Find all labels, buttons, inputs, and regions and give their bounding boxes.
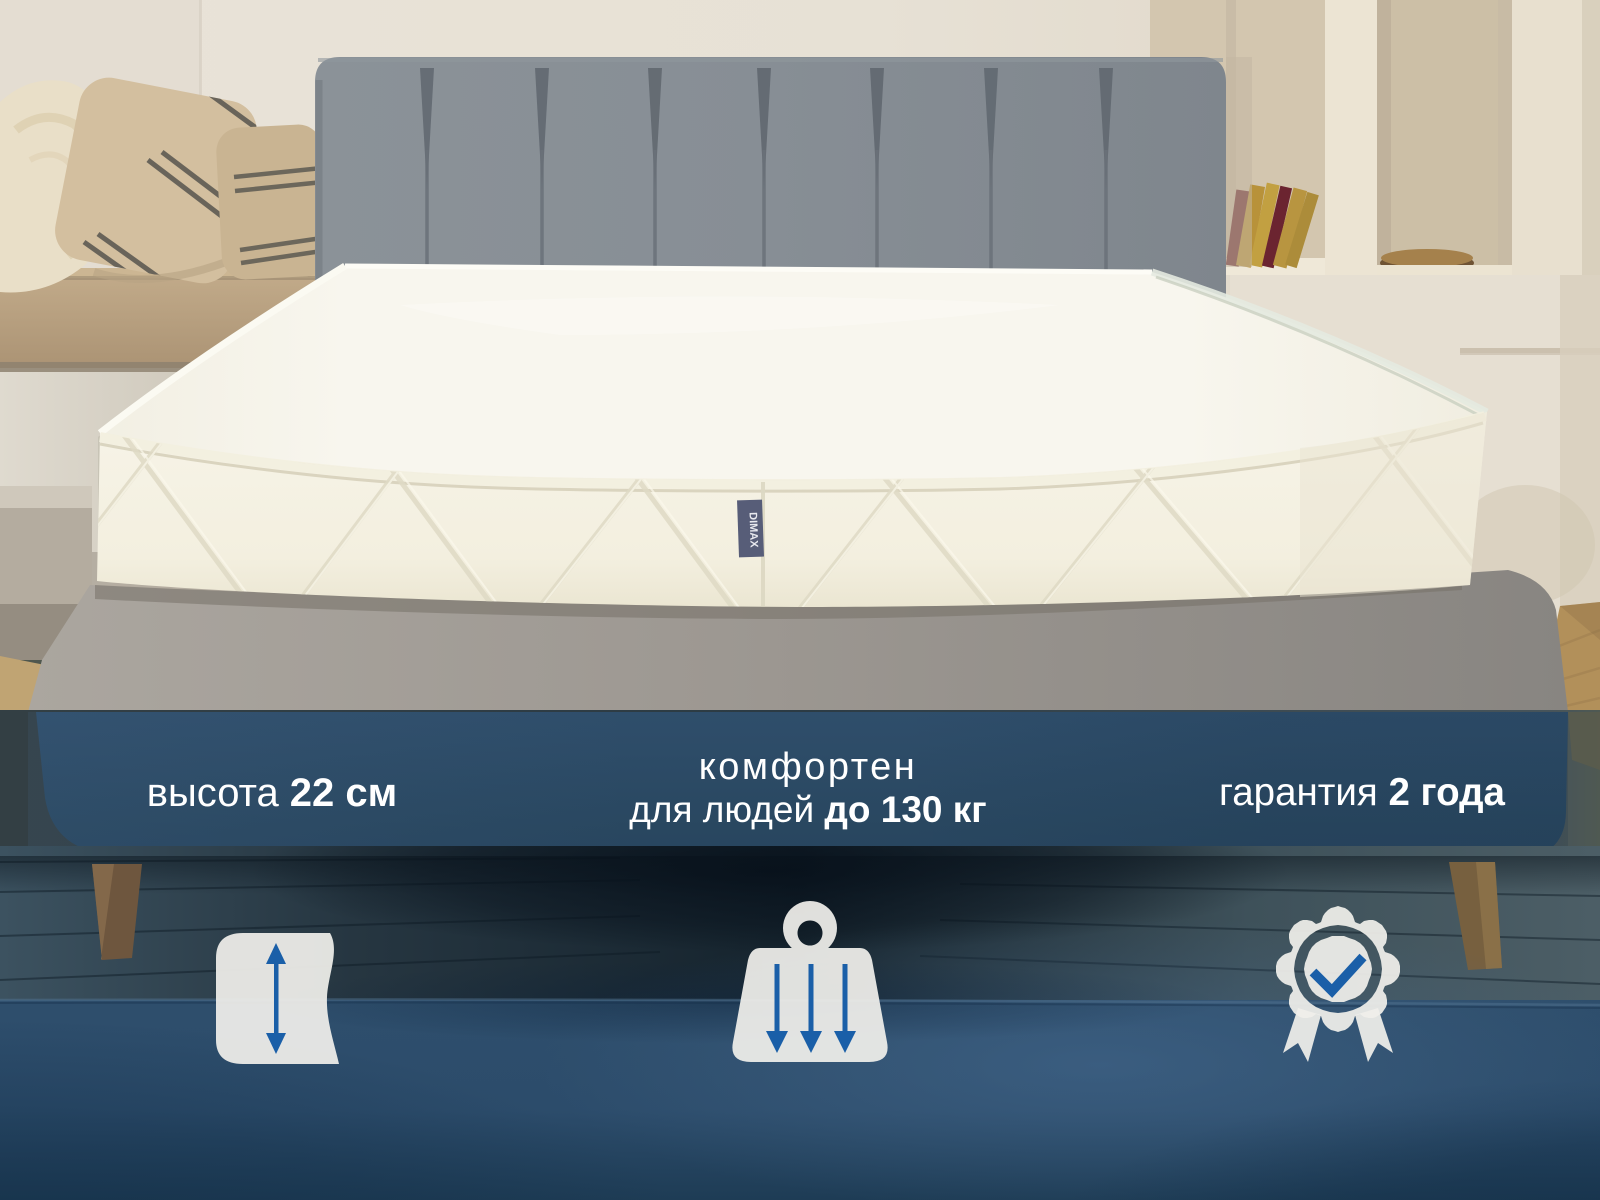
svg-text:гарантия 2 года: гарантия 2 года	[1219, 771, 1505, 814]
svg-text:высота 22 см: высота 22 см	[147, 771, 398, 815]
svg-text:для людей до 130 кг: для людей до 130 кг	[629, 789, 986, 830]
svg-text:DIMAX: DIMAX	[746, 512, 759, 549]
svg-text:комфортен: комфортен	[699, 746, 918, 788]
